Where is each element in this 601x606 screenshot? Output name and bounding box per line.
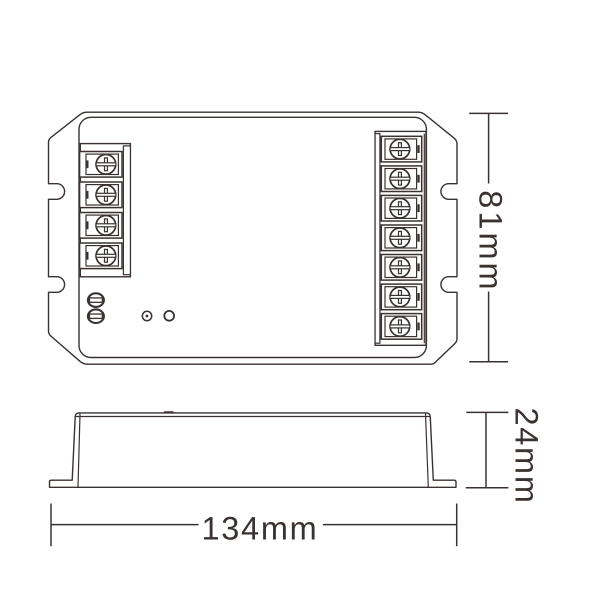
svg-text:24mm: 24mm	[509, 408, 545, 505]
svg-text:134mm: 134mm	[202, 510, 319, 546]
svg-text:81mm: 81mm	[473, 190, 509, 292]
